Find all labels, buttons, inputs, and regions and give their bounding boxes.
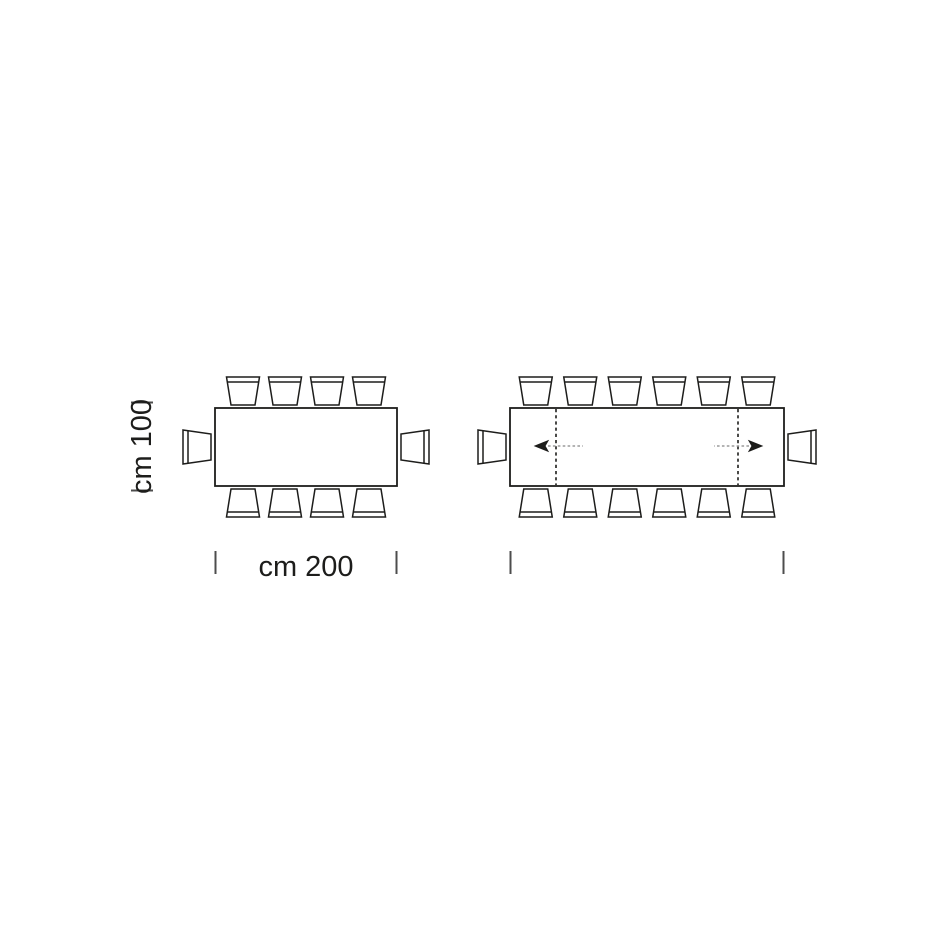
width-dimension: cm 200 (216, 551, 397, 583)
chair-seat-outline (311, 489, 344, 517)
chair-seat-outline (742, 377, 775, 405)
width-dimension-label: cm 200 (258, 551, 353, 583)
extended-table-group (478, 377, 816, 517)
chair-icon (311, 377, 344, 405)
table-dimension-diagram: cm 100 cm 200 (0, 0, 950, 950)
chair-seat-outline (353, 489, 386, 517)
chair-icon (227, 377, 260, 405)
table-top (215, 408, 397, 486)
chair-seat-outline (608, 489, 641, 517)
chair-seat-outline (227, 489, 260, 517)
chair-seat-outline (608, 377, 641, 405)
chair-seat-outline (788, 430, 816, 464)
chair-icon (227, 489, 260, 517)
chair-icon (742, 377, 775, 405)
chair-seat-outline (697, 377, 730, 405)
chair-icon (353, 377, 386, 405)
chair-icon (564, 489, 597, 517)
chair-icon (401, 430, 429, 464)
chair-seat-outline (478, 430, 506, 464)
chair-seat-outline (564, 489, 597, 517)
chair-icon (697, 377, 730, 405)
chair-seat-outline (353, 377, 386, 405)
chair-icon (519, 489, 552, 517)
chair-seat-outline (227, 377, 260, 405)
chair-seat-outline (269, 489, 302, 517)
table-top (510, 408, 784, 486)
chair-seat-outline (742, 489, 775, 517)
chair-icon (697, 489, 730, 517)
chair-icon (311, 489, 344, 517)
chair-icon (564, 377, 597, 405)
chair-icon (608, 489, 641, 517)
chair-icon (788, 430, 816, 464)
chair-icon (269, 489, 302, 517)
chair-seat-outline (519, 377, 552, 405)
chair-icon (183, 430, 211, 464)
chair-icon (742, 489, 775, 517)
chair-icon (478, 430, 506, 464)
chair-icon (353, 489, 386, 517)
depth-dimension: cm 100 (126, 399, 158, 494)
chair-icon (519, 377, 552, 405)
chair-icon (269, 377, 302, 405)
chair-icon (653, 489, 686, 517)
chair-seat-outline (697, 489, 730, 517)
depth-dimension-label: cm 100 (126, 399, 158, 494)
chair-seat-outline (311, 377, 344, 405)
chair-seat-outline (269, 377, 302, 405)
chair-icon (608, 377, 641, 405)
chair-seat-outline (519, 489, 552, 517)
tables-layer (183, 377, 816, 517)
chair-seat-outline (401, 430, 429, 464)
diagram-canvas: cm 100 cm 200 (0, 0, 950, 950)
chair-seat-outline (183, 430, 211, 464)
chair-seat-outline (653, 489, 686, 517)
chair-icon (653, 377, 686, 405)
chair-seat-outline (653, 377, 686, 405)
closed-table-group (183, 377, 429, 517)
extended-width-dimension (511, 551, 784, 574)
chair-seat-outline (564, 377, 597, 405)
